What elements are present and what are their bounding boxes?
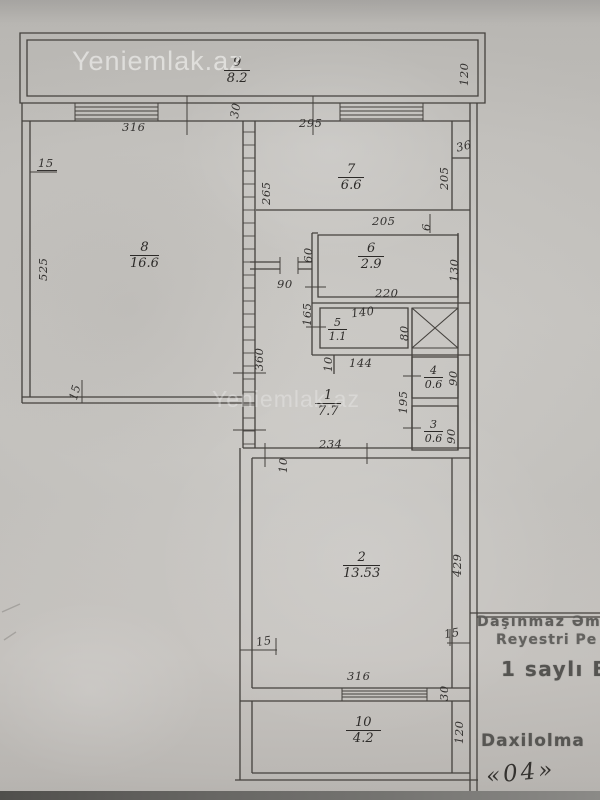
dim-room10-right: 120	[452, 721, 466, 744]
dim-room7-bottom: 205	[372, 214, 395, 228]
dim-room2-b15-right: 15	[443, 625, 461, 642]
room-5-label: 51.1	[328, 317, 347, 343]
room-3-label: 30.6	[424, 419, 443, 445]
dim-room5-right: 80	[397, 325, 411, 341]
stamp-line-4: Daxilolma	[481, 731, 585, 751]
room-2-number: 2	[343, 550, 380, 566]
room-2-area: 13.53	[343, 566, 380, 582]
room-9-label: 98.2	[224, 55, 250, 87]
dim-room7-left: 265	[259, 182, 273, 205]
room-10-label: 104.2	[346, 715, 381, 747]
room-4-number: 4	[424, 365, 443, 378]
pencil-marks	[2, 604, 20, 640]
room-9-area: 8.2	[224, 71, 250, 87]
dim-room1-bottom: 234	[319, 437, 342, 451]
dim-room6-right: 130	[447, 259, 461, 282]
stamp-line-3: 1 saylı B	[501, 657, 600, 681]
room-6-label: 62.9	[358, 241, 384, 273]
scanned-floor-plan-page: { "watermark": "Yeniemlak.az", "rooms": …	[0, 0, 600, 800]
room-2-label: 213.53	[343, 550, 380, 582]
room-1-area: 7.7	[315, 404, 341, 420]
dim-small6: 6	[419, 223, 433, 231]
dim-room6-bottom: 220	[375, 286, 398, 300]
room-5-area: 1.1	[328, 330, 347, 343]
wall-lines	[20, 33, 600, 800]
room-8-label: 816.6	[130, 240, 159, 272]
room-3-number: 3	[424, 419, 443, 432]
dim-room8-top: 316	[122, 120, 145, 134]
room-8-area: 16.6	[130, 256, 159, 272]
dim-stub10: 10	[321, 356, 335, 372]
room-9-number: 9	[224, 55, 250, 71]
room-7-area: 6.6	[338, 178, 364, 194]
dimension-ticks	[30, 96, 470, 655]
window-symbols	[75, 103, 427, 701]
dim-room2-b15-left: 15	[255, 633, 272, 649]
room-4-area: 0.6	[424, 378, 443, 391]
dim-wall360: 360	[252, 348, 266, 371]
room-10-area: 4.2	[346, 731, 381, 747]
dim-room6-left: 60	[301, 247, 315, 263]
dim-room5-left: 165	[300, 303, 314, 326]
dim-wall30-top: 30	[227, 102, 244, 120]
dim-wall30-bottom: 30	[437, 685, 451, 701]
dim-room5-top: 140	[350, 304, 375, 321]
room-1-label: 17.7	[315, 388, 341, 420]
dim-room4-right: 90	[446, 370, 460, 386]
stamp-line-1: Daşınmaz Əm	[477, 614, 600, 630]
dim-room7-top: 295	[299, 116, 322, 130]
dim-balcony9-right: 120	[457, 63, 471, 86]
room-6-area: 2.9	[358, 257, 384, 273]
room-1-number: 1	[315, 388, 341, 404]
room-4-label: 40.6	[424, 365, 443, 391]
dim-room2-bottom: 316	[347, 669, 370, 683]
room-10-number: 10	[346, 715, 381, 731]
dim-room7-right: 205	[437, 167, 451, 190]
dim-hall-bottom: 144	[349, 356, 372, 370]
hatched-wall	[243, 132, 255, 444]
stamp-line-2: Reyestri Pe	[496, 632, 597, 648]
room-8-number: 8	[130, 240, 159, 256]
room-3-area: 0.6	[424, 432, 443, 445]
scan-edge-shadow	[0, 791, 600, 800]
dim-room3-right: 90	[444, 428, 458, 444]
dim-room8-left: 525	[36, 258, 50, 281]
room-6-number: 6	[358, 241, 384, 257]
room-5-number: 5	[328, 317, 347, 330]
dim-hall-door: 90	[277, 277, 293, 291]
dim-between43: 195	[396, 391, 410, 414]
dim-room8-left15: 15	[37, 156, 57, 171]
shaft-x-symbol	[412, 308, 458, 348]
dim-room2-right: 429	[450, 554, 464, 577]
dim-room2-top10: 10	[276, 457, 290, 473]
room-7-number: 7	[338, 162, 364, 178]
room-7-label: 76.6	[338, 162, 364, 194]
